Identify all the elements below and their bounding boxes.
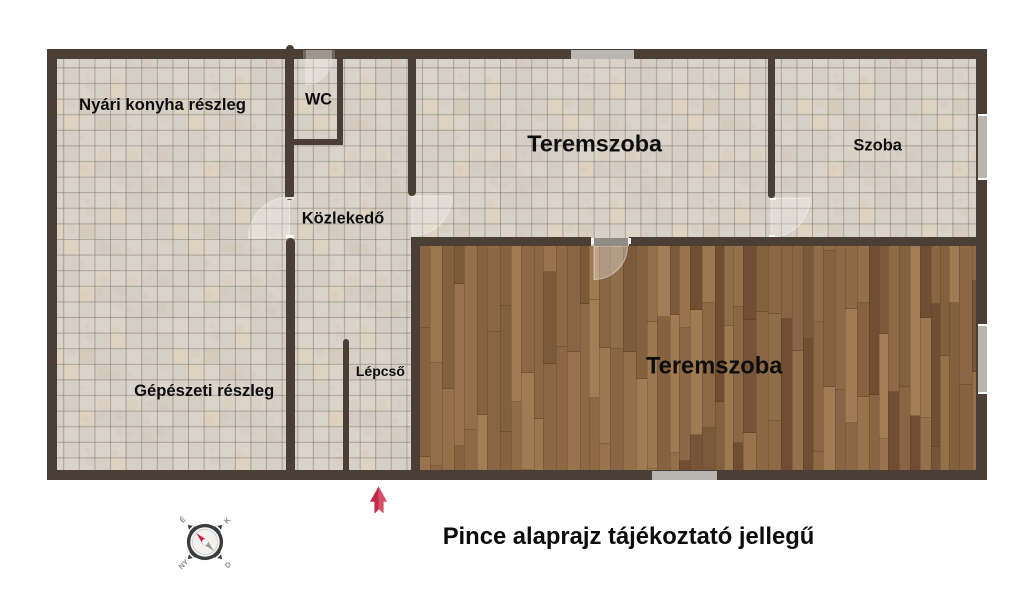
svg-text:NY: NY [177,557,191,571]
svg-text:É: É [178,515,188,525]
svg-text:K: K [222,515,233,526]
svg-text:D: D [223,559,234,570]
